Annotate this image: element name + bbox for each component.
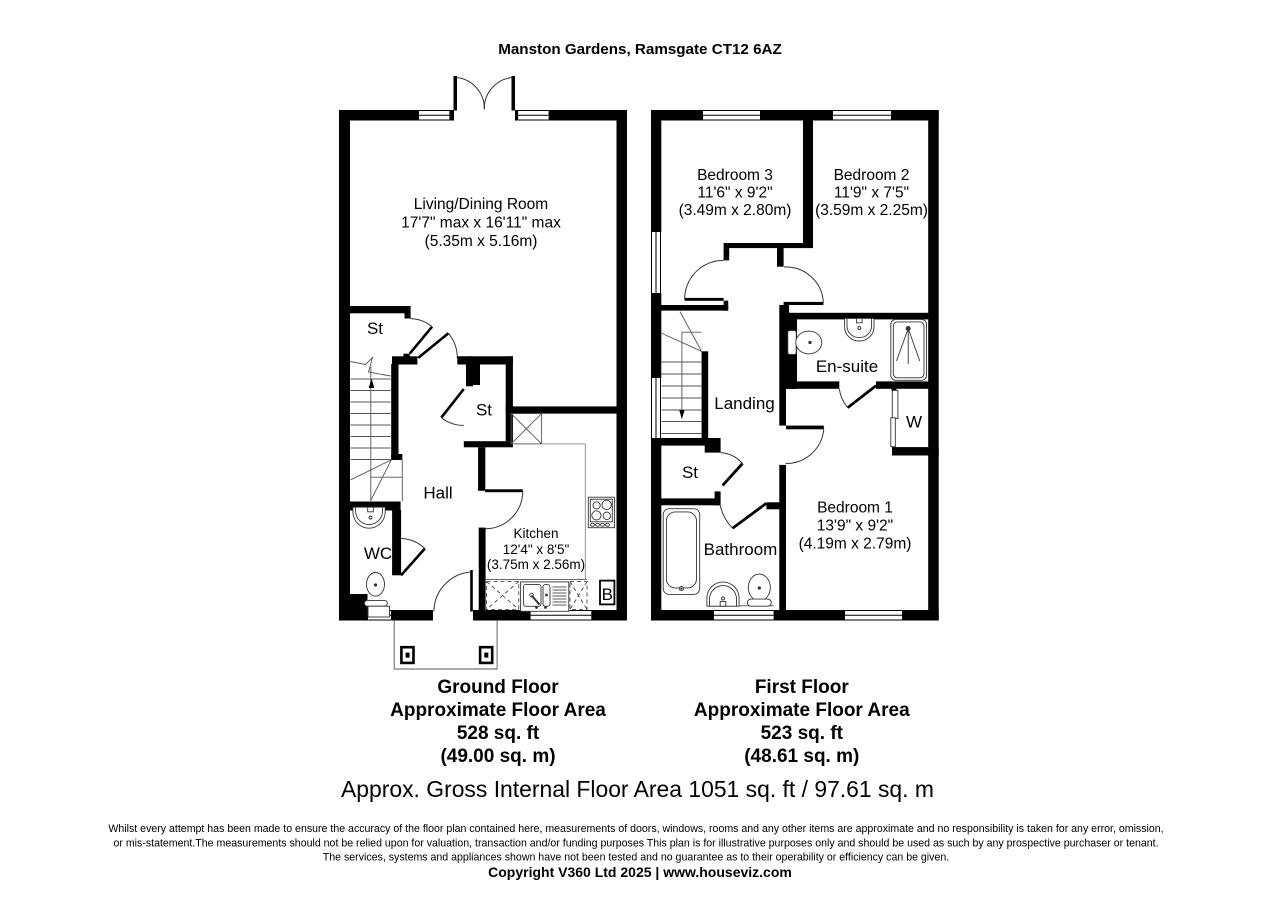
- svg-text:17'7" max x 16'11" max: 17'7" max x 16'11" max: [401, 215, 561, 232]
- svg-text:The services, systems and appl: The services, systems and appliances sho…: [323, 852, 949, 864]
- svg-text:Bathroom: Bathroom: [704, 540, 778, 559]
- svg-text:Whilst every attempt has been: Whilst every attempt has been made to en…: [108, 823, 1163, 835]
- svg-text:Living/Dining Room: Living/Dining Room: [414, 196, 548, 213]
- svg-text:(4.19m x 2.79m): (4.19m x 2.79m): [799, 536, 912, 553]
- svg-text:528 sq. ft: 528 sq. ft: [457, 723, 540, 744]
- svg-text:(49.00 sq. m): (49.00 sq. m): [440, 746, 555, 767]
- svg-text:(3.75m x 2.56m): (3.75m x 2.56m): [487, 557, 585, 572]
- svg-text:Manston Gardens, Ramsgate CT12: Manston Gardens, Ramsgate CT12 6AZ: [498, 41, 782, 58]
- svg-text:Approximate Floor Area: Approximate Floor Area: [390, 700, 606, 721]
- svg-text:Bedroom 1: Bedroom 1: [817, 500, 893, 517]
- svg-text:(5.35m x 5.16m): (5.35m x 5.16m): [425, 233, 538, 250]
- svg-text:W: W: [906, 413, 922, 432]
- svg-text:First Floor: First Floor: [755, 677, 850, 698]
- svg-text:St: St: [682, 463, 698, 482]
- svg-text:13'9" x 9'2": 13'9" x 9'2": [817, 518, 893, 535]
- svg-text:B: B: [602, 585, 613, 604]
- svg-text:523 sq. ft: 523 sq. ft: [761, 723, 844, 744]
- svg-text:Copyright V360 Ltd 2025 | www.: Copyright V360 Ltd 2025 | www.houseviz.c…: [488, 864, 792, 880]
- svg-text:11'6" x 9'2": 11'6" x 9'2": [697, 185, 772, 202]
- svg-text:(48.61 sq. m): (48.61 sq. m): [744, 746, 859, 767]
- svg-text:Bedroom 3: Bedroom 3: [697, 167, 773, 184]
- svg-text:or mis-statement.The measureme: or mis-statement.The measurements should…: [113, 837, 1158, 849]
- svg-text:Approx. Gross Internal Floor A: Approx. Gross Internal Floor Area 1051 s…: [341, 776, 934, 802]
- svg-text:(3.49m x 2.80m): (3.49m x 2.80m): [679, 202, 792, 219]
- svg-text:En-suite: En-suite: [816, 357, 878, 376]
- svg-text:St: St: [367, 319, 383, 338]
- svg-text:(3.59m x 2.25m): (3.59m x 2.25m): [815, 202, 928, 219]
- svg-text:Hall: Hall: [423, 484, 452, 503]
- svg-text:St: St: [476, 401, 492, 420]
- svg-text:WC: WC: [364, 544, 392, 563]
- svg-text:Ground Floor: Ground Floor: [437, 677, 559, 698]
- svg-text:Kitchen: Kitchen: [513, 526, 558, 541]
- svg-text:11'9" x 7'5": 11'9" x 7'5": [834, 185, 909, 202]
- svg-text:Bedroom 2: Bedroom 2: [834, 167, 910, 184]
- svg-text:12'4" x 8'5": 12'4" x 8'5": [503, 542, 570, 557]
- svg-text:Approximate Floor Area: Approximate Floor Area: [694, 700, 910, 721]
- svg-text:Landing: Landing: [714, 394, 775, 413]
